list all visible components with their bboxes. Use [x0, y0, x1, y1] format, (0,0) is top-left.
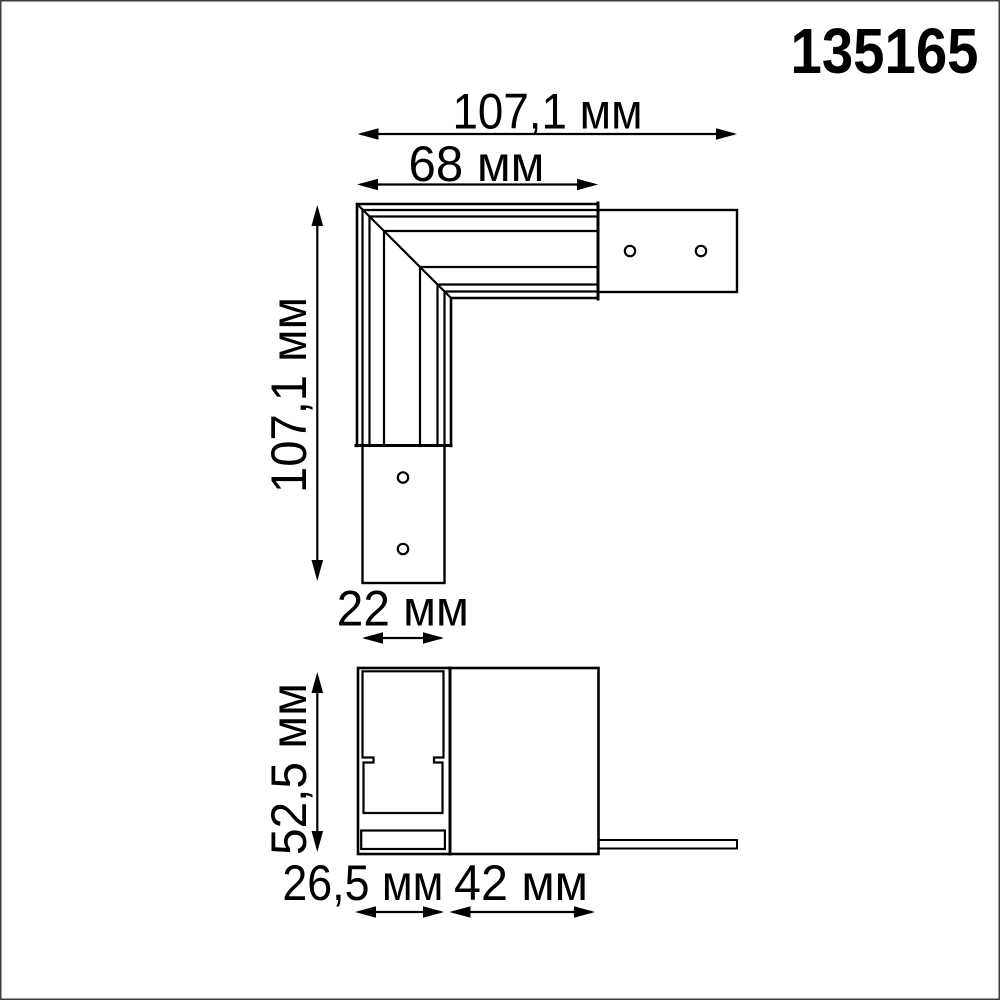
svg-text:22 мм: 22 мм — [337, 581, 469, 637]
svg-text:68 мм: 68 мм — [409, 136, 545, 192]
svg-text:26,5 мм: 26,5 мм — [282, 855, 443, 911]
svg-text:135165: 135165 — [791, 15, 979, 87]
svg-text:52,5 мм: 52,5 мм — [261, 683, 317, 855]
svg-text:107,1 мм: 107,1 мм — [261, 297, 317, 493]
svg-text:42 мм: 42 мм — [454, 855, 588, 911]
svg-text:107,1 мм: 107,1 мм — [453, 84, 643, 140]
